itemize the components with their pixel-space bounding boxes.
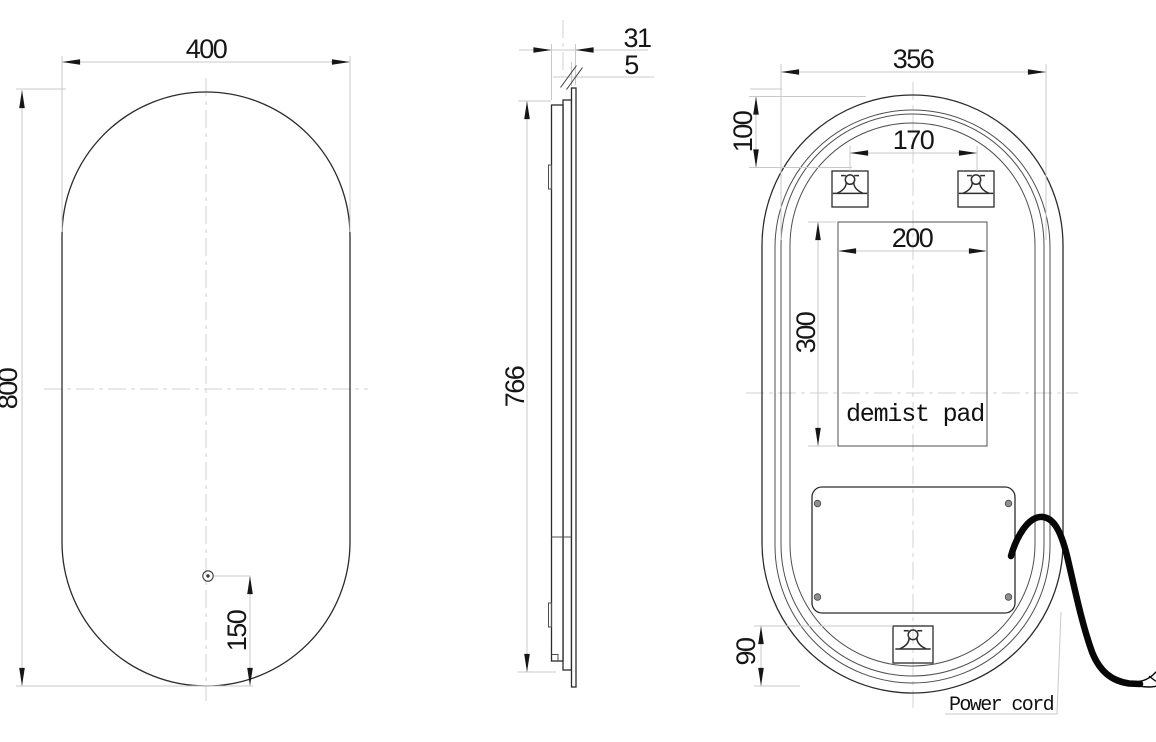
keyhole-slot-icon bbox=[959, 175, 993, 194]
glass-thickness-value: 5 bbox=[624, 50, 638, 80]
pad-height-value: 300 bbox=[791, 312, 821, 353]
front-view: 400 800 150 bbox=[0, 34, 368, 701]
side-junction-edge bbox=[549, 603, 552, 627]
dim-front-height: 800 bbox=[0, 89, 253, 686]
dim-pad-height: 300 bbox=[791, 222, 836, 446]
sensor-offset-value: 150 bbox=[222, 610, 252, 651]
back-view: demist pad 356 100 bbox=[728, 44, 1156, 717]
body-height-value: 766 bbox=[500, 366, 530, 407]
keyhole-slot-icon bbox=[833, 175, 867, 194]
side-glass bbox=[572, 88, 577, 687]
dim-bracket-top-offset: 100 bbox=[728, 89, 866, 168]
bracket-top-offset-value: 100 bbox=[728, 111, 758, 152]
side-back-box bbox=[552, 105, 564, 661]
bracket-plate bbox=[832, 171, 868, 207]
hatch-mark bbox=[567, 68, 583, 90]
front-height-value: 800 bbox=[0, 368, 23, 409]
drawing-canvas: 400 800 150 31 bbox=[0, 0, 1156, 742]
screw-icon bbox=[814, 500, 821, 507]
front-width-value: 400 bbox=[186, 34, 227, 64]
screw-icon bbox=[814, 594, 821, 601]
dim-glass-thickness: 5 bbox=[553, 50, 654, 90]
screw-icon bbox=[1005, 594, 1012, 601]
mounting-bracket-right bbox=[958, 171, 994, 207]
dim-sensor-offset: 150 bbox=[214, 576, 253, 686]
side-view: 31 5 766 bbox=[500, 20, 654, 687]
dim-bracket-bottom-offset: 90 bbox=[731, 626, 893, 686]
screw-icon bbox=[1005, 500, 1012, 507]
dim-body-height: 766 bbox=[500, 101, 556, 672]
leader-line bbox=[1057, 612, 1061, 714]
side-frame-layer bbox=[563, 100, 572, 670]
touch-sensor bbox=[203, 571, 213, 581]
power-cord-cable bbox=[1011, 517, 1140, 684]
touch-sensor-dot bbox=[206, 574, 209, 577]
back-width-value: 356 bbox=[893, 44, 934, 74]
bracket-bottom-offset-value: 90 bbox=[731, 638, 761, 666]
bracket-spacing-value: 170 bbox=[893, 125, 934, 155]
bracket-plate bbox=[958, 171, 994, 207]
cord-wire-strand bbox=[1150, 677, 1156, 682]
mirror-technical-drawing: 400 800 150 31 bbox=[0, 0, 1156, 742]
power-cord bbox=[1011, 517, 1156, 687]
power-cord-callout: Power cord bbox=[945, 612, 1061, 717]
side-depth-value: 31 bbox=[623, 23, 651, 53]
power-cord-label: Power cord bbox=[949, 694, 1054, 717]
cord-wire-strand bbox=[1139, 686, 1156, 688]
mounting-bracket-left bbox=[832, 171, 868, 207]
pad-width-value: 200 bbox=[892, 223, 933, 253]
side-bracket-edge bbox=[549, 165, 552, 189]
dim-pad-width: 200 bbox=[838, 223, 987, 253]
demist-pad-label: demist pad bbox=[846, 400, 984, 429]
